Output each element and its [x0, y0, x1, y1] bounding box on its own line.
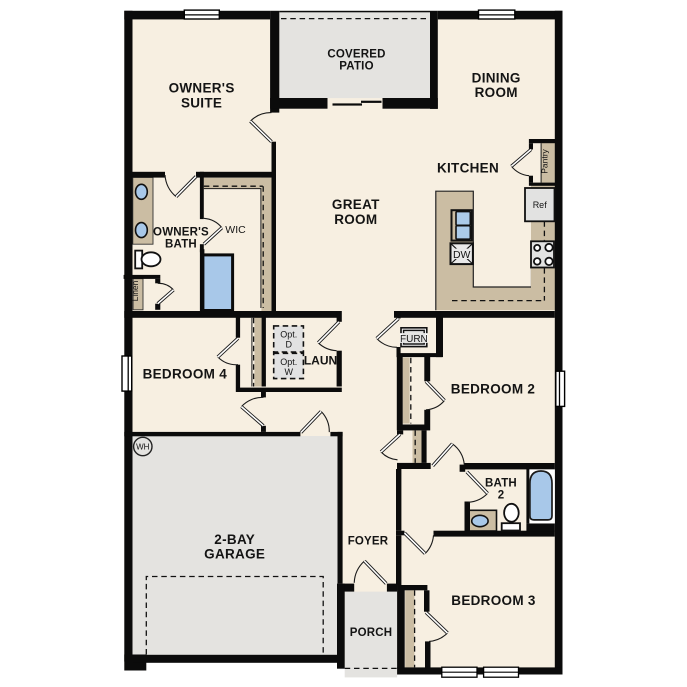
svg-text:W: W: [284, 367, 293, 377]
svg-text:GARAGE: GARAGE: [204, 546, 265, 561]
svg-text:COVERED: COVERED: [327, 49, 385, 61]
svg-text:Opt.: Opt.: [280, 330, 297, 340]
svg-text:D: D: [285, 340, 292, 350]
svg-text:Ref: Ref: [533, 200, 548, 210]
svg-text:BATH: BATH: [485, 478, 517, 490]
svg-text:SUITE: SUITE: [181, 96, 222, 111]
svg-text:BEDROOM 4: BEDROOM 4: [143, 366, 228, 381]
svg-text:Linen: Linen: [130, 280, 140, 301]
svg-text:2-BAY: 2-BAY: [214, 532, 255, 547]
svg-text:PORCH: PORCH: [350, 627, 393, 639]
svg-text:LAUN: LAUN: [304, 353, 337, 367]
svg-text:WH: WH: [136, 443, 150, 452]
svg-text:PATIO: PATIO: [339, 61, 373, 73]
svg-text:Opt.: Opt.: [280, 357, 297, 367]
svg-text:2: 2: [498, 490, 505, 502]
svg-text:OWNER'S: OWNER'S: [169, 80, 235, 95]
svg-text:BATH: BATH: [165, 238, 197, 250]
svg-text:OWNER'S: OWNER'S: [153, 227, 209, 239]
svg-text:BEDROOM 3: BEDROOM 3: [451, 593, 536, 608]
svg-text:DW: DW: [453, 249, 471, 261]
svg-text:ROOM: ROOM: [334, 212, 377, 227]
svg-text:KITCHEN: KITCHEN: [437, 160, 499, 175]
svg-text:Pantry: Pantry: [540, 148, 550, 173]
svg-text:FURN: FURN: [400, 334, 428, 345]
svg-text:DINING: DINING: [472, 70, 521, 85]
svg-text:FOYER: FOYER: [348, 536, 389, 548]
svg-text:ROOM: ROOM: [475, 85, 518, 100]
svg-text:BEDROOM 2: BEDROOM 2: [451, 381, 535, 396]
svg-text:WIC: WIC: [225, 224, 246, 236]
svg-text:GREAT: GREAT: [332, 197, 380, 212]
